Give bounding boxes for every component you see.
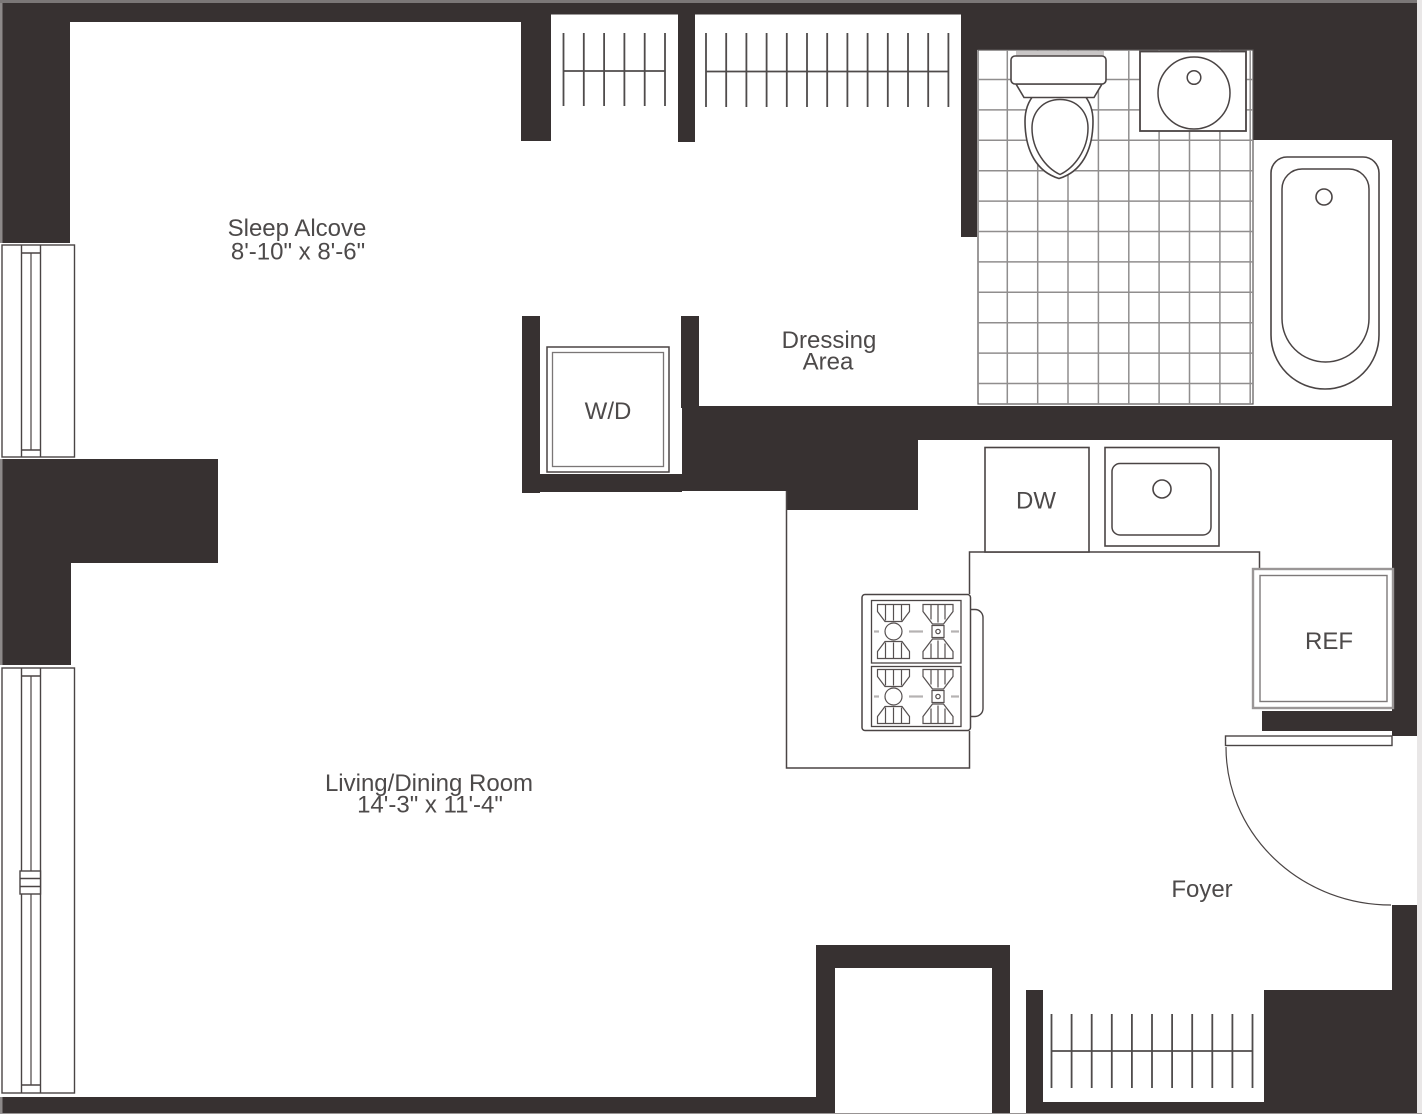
svg-text:Area: Area — [803, 349, 854, 376]
svg-text:14'-3" x 11'-4": 14'-3" x 11'-4" — [357, 792, 503, 819]
svg-text:Foyer: Foyer — [1171, 876, 1232, 903]
svg-text:W/D: W/D — [585, 398, 632, 425]
svg-text:DW: DW — [1016, 488, 1056, 515]
svg-text:REF: REF — [1305, 628, 1353, 655]
svg-text:8'-10" x 8'-6": 8'-10" x 8'-6" — [231, 239, 365, 266]
